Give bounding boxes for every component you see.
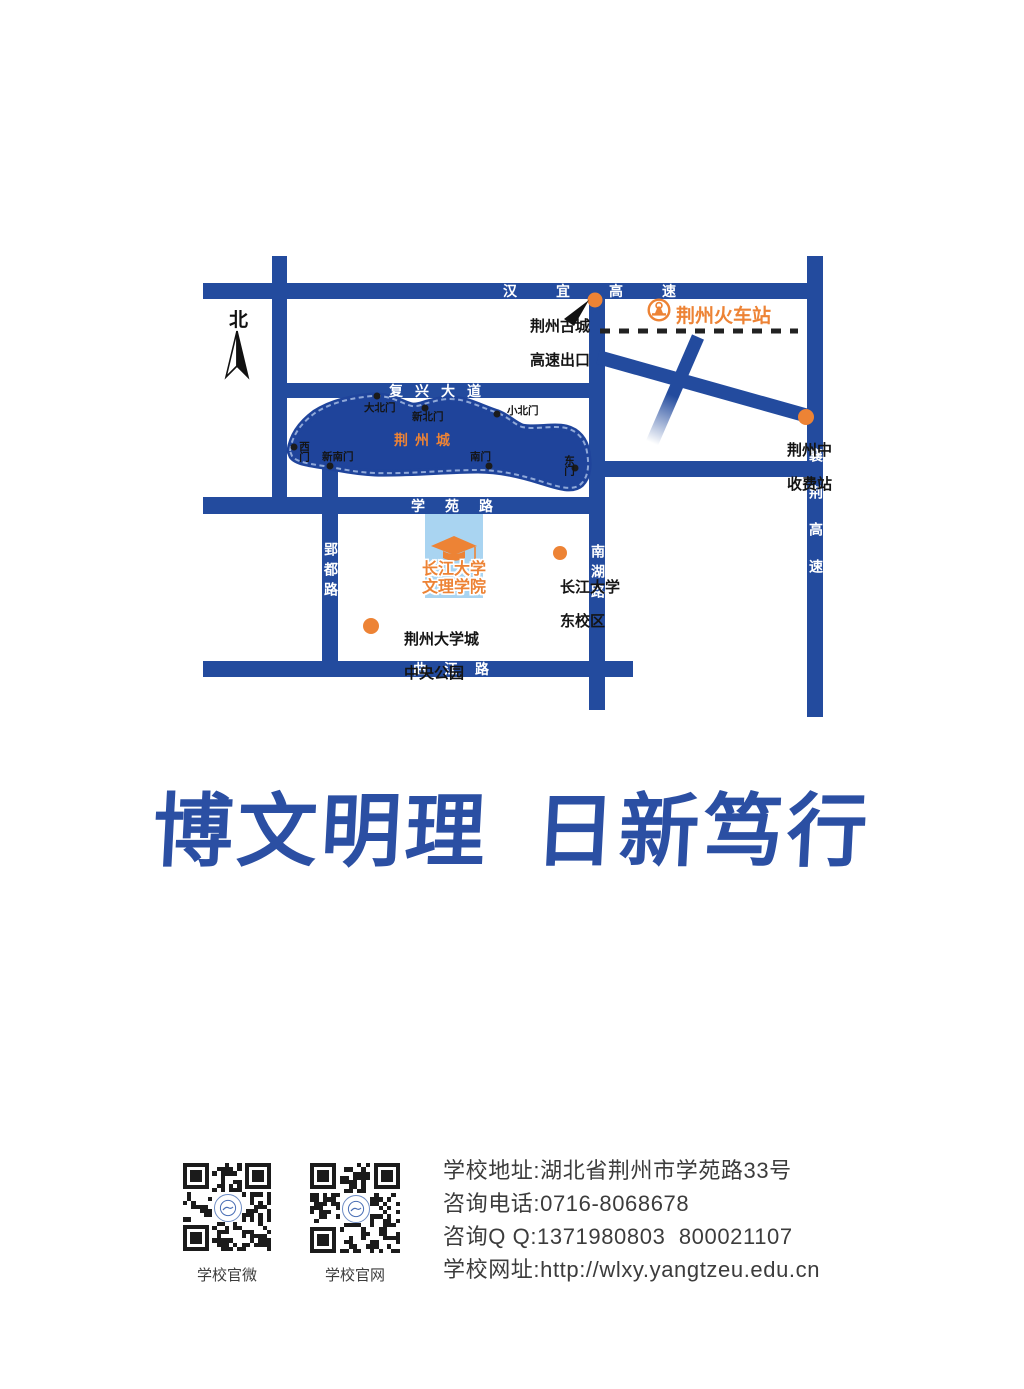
qr-finder-icon [183, 1163, 209, 1189]
city-name-label: 荆州城 [394, 430, 457, 450]
qr-code-website [310, 1163, 400, 1253]
road-label-yingdu: 郢都路 [323, 542, 338, 602]
location-map: 北 汉宜高速 复兴大道 学苑路 曲江路 郢都路 南湖路 襄荆高速 荆州城 大北门… [0, 0, 1024, 760]
road-label-xiangjing: 襄荆高速 [808, 448, 823, 596]
exit-label-line1: 荆州古城 [530, 318, 590, 335]
school-emblem-icon [342, 1195, 370, 1223]
gate-label-xinnanmen: 新南门 [322, 452, 354, 463]
contact-phone: 咨询电话:0716-8068678 [443, 1192, 689, 1216]
qr-code-wechat [183, 1163, 271, 1251]
train-station-icon [649, 300, 670, 321]
east-campus-label: 长江大学 东校区 [535, 562, 591, 647]
qr-finder-icon [245, 1163, 271, 1189]
park-line1: 荆州大学城 [404, 631, 479, 648]
gate-label-dabeimen: 大北门 [364, 403, 396, 414]
road-nanhu-vertical [589, 283, 605, 710]
gate-dot-xinnanmen [327, 463, 334, 470]
motto-part2: 日新笃行 [532, 782, 873, 882]
gate-label-ximen: 西门 [298, 441, 309, 462]
college-label-line2: 文理学院 [422, 579, 486, 596]
gate-dot-xiaobeimen [494, 411, 501, 418]
qr-finder-icon [310, 1227, 336, 1253]
gate-label-xinbeimen: 新北门 [412, 412, 444, 423]
road-label-hanyi: 汉宜高速 [503, 284, 715, 299]
qr-finder-icon [374, 1163, 400, 1189]
brochure-page: 北 汉宜高速 复兴大道 学苑路 曲江路 郢都路 南湖路 襄荆高速 荆州城 大北门… [0, 0, 1024, 1389]
school-motto: 博文明理 日新笃行 [147, 782, 876, 882]
dot-east-campus [553, 546, 567, 560]
toll-label-line1: 荆州中 [787, 442, 832, 459]
contact-address: 学校地址:湖北省荆州市学苑路33号 [443, 1159, 792, 1183]
toll-station-label: 荆州中 收费站 [762, 425, 807, 510]
road-label-xueyuan: 学苑路 [411, 499, 513, 514]
east-campus-line1: 长江大学 [560, 579, 620, 596]
dot-toll-station [798, 409, 814, 425]
gate-dot-ximen [291, 444, 298, 451]
toll-label-line2: 收费站 [787, 476, 832, 493]
train-station-label: 荆州火车站 [676, 301, 771, 328]
road-label-fuxing: 复兴大道 [389, 384, 493, 399]
gate-label-nanmen: 南门 [470, 452, 491, 463]
gate-label-xiaobeimen: 小北门 [507, 406, 539, 417]
east-campus-line2: 东校区 [560, 613, 605, 630]
college-label: 长江大学 文理学院 [419, 561, 489, 597]
central-park-label: 荆州大学城 中央公园 [379, 614, 445, 699]
qr-finder-icon [310, 1163, 336, 1189]
qr-wechat-label: 学校官微 [183, 1264, 271, 1285]
contact-qq: 咨询Q Q:1371980803 800021107 [443, 1225, 793, 1249]
north-arrow-icon [226, 331, 248, 377]
motto-part1: 博文明理 [150, 782, 491, 882]
gate-label-dongmen: 东门 [563, 455, 574, 476]
road-xueyuan-west [203, 497, 605, 514]
exit-label-line2: 高速出口 [530, 352, 590, 369]
school-emblem-icon [214, 1194, 242, 1222]
compass-north-label: 北 [229, 305, 248, 332]
contact-website: 学校网址:http://wlxy.yangtzeu.edu.cn [443, 1258, 820, 1282]
road-diagonal-to-toll [598, 357, 808, 416]
qr-finder-icon [183, 1225, 209, 1251]
college-label-line1: 长江大学 [422, 561, 486, 578]
qr-website-label: 学校官网 [310, 1264, 400, 1285]
gate-dot-dabeimen [374, 393, 381, 400]
park-line2: 中央公园 [404, 665, 464, 682]
dot-central-park [363, 618, 379, 634]
gate-dot-nanmen [486, 463, 493, 470]
expressway-exit-label: 荆州古城 高速出口 [505, 301, 569, 386]
